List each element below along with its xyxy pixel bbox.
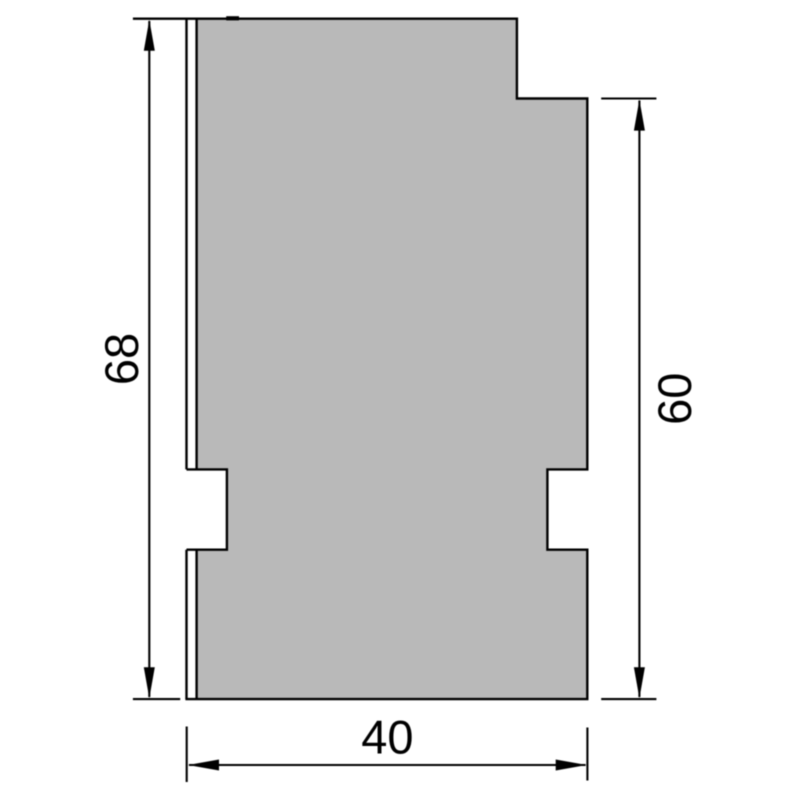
svg-text:60: 60: [648, 373, 701, 425]
svg-text:68: 68: [95, 333, 148, 385]
svg-text:40: 40: [361, 710, 413, 763]
